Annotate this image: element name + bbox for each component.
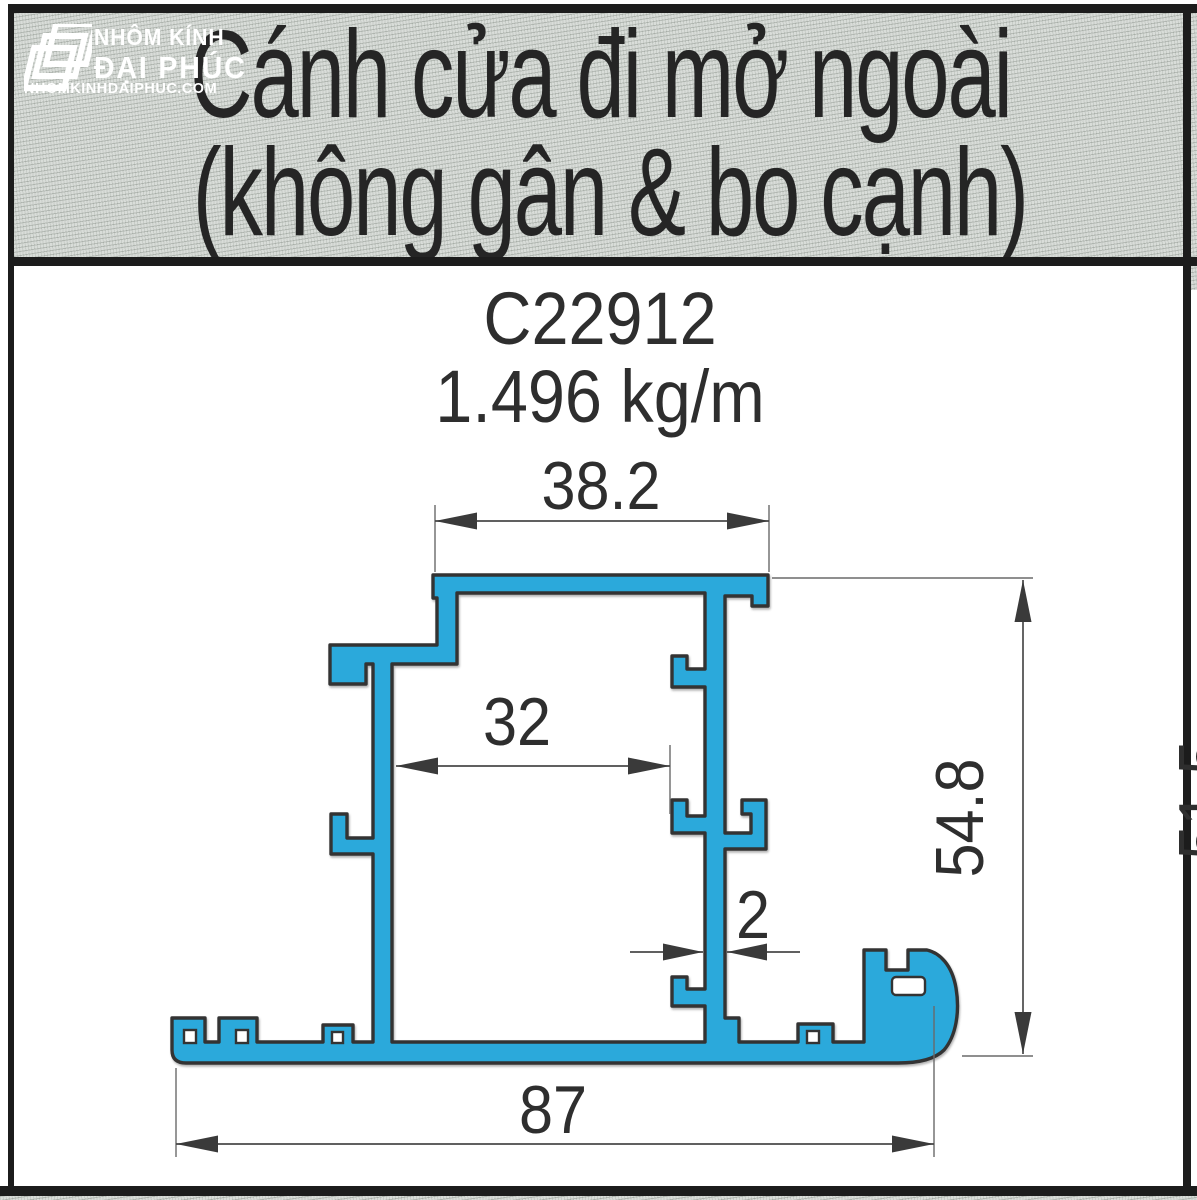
right-neighbor-cell-strip — [1191, 13, 1197, 290]
dim-top-width-label: 38.2 — [541, 447, 660, 524]
profile-cross-section — [172, 575, 958, 1063]
title-line-2: (không gân & bo cạnh) — [193, 134, 1027, 252]
dim-wall-thickness-label: 2 — [736, 876, 770, 953]
dim-inner-width-label: 32 — [483, 683, 551, 760]
notch-tab-3 — [332, 1032, 343, 1043]
notch-tab-5 — [807, 1031, 819, 1043]
profile-weight: 1.496 kg/m — [435, 355, 764, 438]
title-line-1: Cánh cửa đi mở ngoài — [190, 16, 1011, 134]
dim-height-label: 54.8 — [921, 758, 998, 877]
notch-foot-hook — [892, 977, 925, 995]
notch-tab-2 — [236, 1030, 248, 1043]
logo-line-1: NHÔM KÍNH — [94, 26, 247, 49]
profile-code: C22912 — [483, 277, 716, 360]
dim-bottom-width-label: 87 — [519, 1071, 587, 1148]
catalog-page: Cánh cửa đi mở ngoài (không gân & bo cạn… — [0, 0, 1197, 1200]
profile-drawing: C22912 1.496 kg/m 38.2 — [0, 267, 1197, 1200]
logo-line-2: ĐẠI PHÚC — [94, 52, 247, 83]
profile-outline — [172, 575, 958, 1063]
logo-website: NHOMKINHDAIPHUC.COM — [24, 82, 217, 97]
next-row-strip — [0, 1196, 1197, 1200]
dim-clipped-right-label: 51.5 — [1164, 740, 1197, 859]
dim-top-width: 38.2 — [435, 447, 769, 572]
notch-left-cap — [184, 1030, 196, 1043]
border-header-bottom — [8, 257, 1197, 266]
dim-inner-width: 32 — [396, 683, 670, 814]
